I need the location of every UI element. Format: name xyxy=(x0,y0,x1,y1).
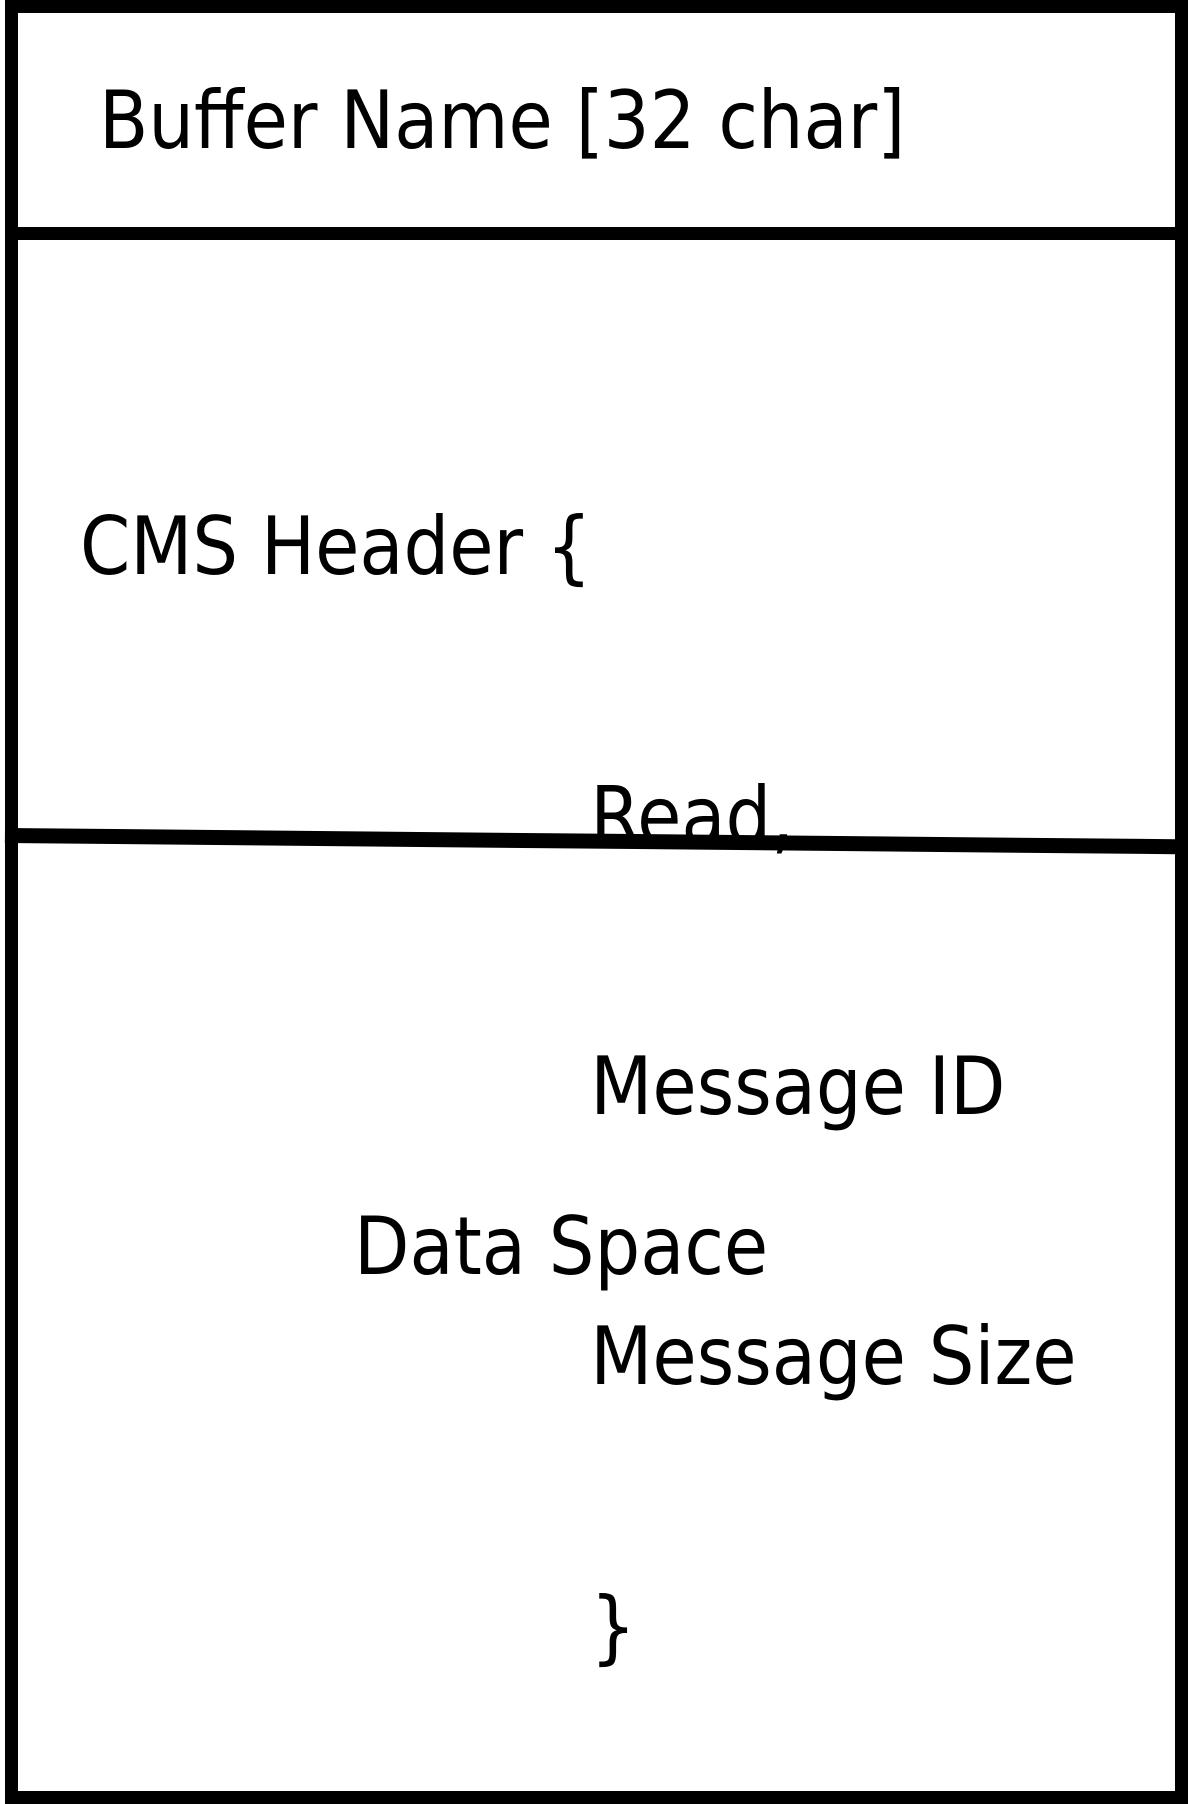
cms-header-close-brace-line: } xyxy=(80,1582,1077,1672)
cms-field-read: Read, xyxy=(80,772,1077,862)
cms-header-block: CMS Header { Read, Message ID Message Si… xyxy=(80,322,1077,1804)
buffer-name-divider xyxy=(5,227,1188,240)
cms-header-open-brace-line: CMS Header { xyxy=(80,502,1077,592)
buffer-memory-layout-diagram: Buffer Name [32 char] CMS Header { Read,… xyxy=(0,0,1188,1804)
buffer-name-label: Buffer Name [32 char] xyxy=(99,74,905,167)
data-space-label: Data Space xyxy=(354,1200,768,1293)
cms-field-message-size: Message Size xyxy=(80,1312,1077,1402)
cms-field-message-id: Message ID xyxy=(80,1042,1077,1132)
